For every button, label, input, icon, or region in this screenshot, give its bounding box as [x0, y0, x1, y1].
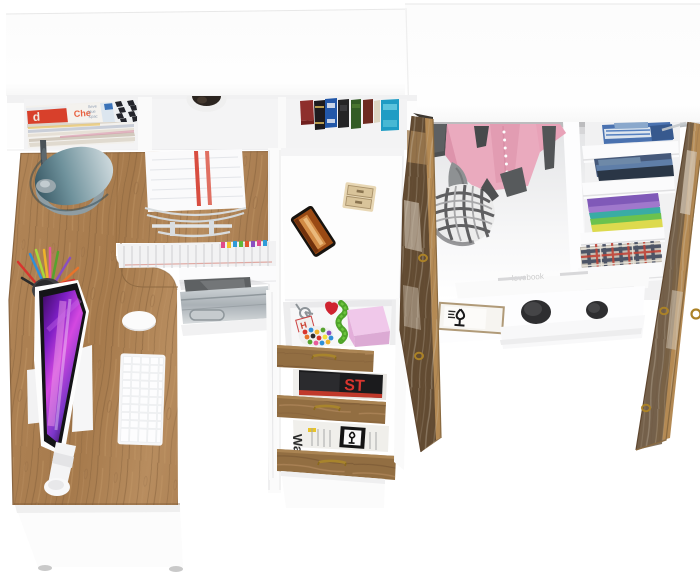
svg-text:Kpac: Kpac	[88, 113, 97, 119]
svg-text:d: d	[32, 110, 40, 124]
